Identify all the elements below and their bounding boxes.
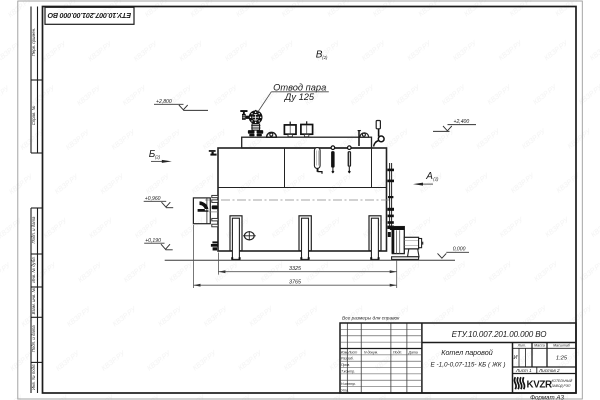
svg-text:Дата: Дата: [408, 350, 418, 354]
svg-text:Инв. № дубл.: Инв. № дубл.: [31, 256, 36, 282]
svg-text:Инв. № подл.: Инв. № подл.: [31, 363, 36, 390]
svg-text:Т.контр.: Т.контр.: [341, 369, 355, 373]
svg-text:Утв.: Утв.: [341, 388, 349, 392]
svg-text:Все размеры для справок: Все размеры для справок: [342, 316, 400, 322]
svg-text:ЕТУ.10.007.201.00.000 ВО: ЕТУ.10.007.201.00.000 ВО: [452, 330, 547, 339]
svg-text:Лист 1: Лист 1: [515, 368, 532, 373]
svg-text:(2): (2): [433, 176, 439, 181]
svg-text:Масштаб: Масштаб: [553, 344, 571, 348]
svg-text:Лит.: Лит.: [517, 344, 526, 348]
svg-text:Подп. и дата: Подп. и дата: [31, 216, 36, 244]
svg-text:3325: 3325: [289, 266, 302, 272]
svg-text:ЕТУ.10.007.201.00.000 ВО: ЕТУ.10.007.201.00.000 ВО: [47, 11, 131, 20]
svg-text:1:25: 1:25: [556, 356, 568, 362]
svg-text:(2): (2): [322, 55, 328, 60]
svg-text:Подп.: Подп.: [393, 350, 402, 354]
svg-text:Подп. и дата: Подп. и дата: [31, 325, 36, 353]
svg-text:И: И: [514, 355, 518, 361]
svg-text:3765: 3765: [289, 279, 302, 285]
svg-text:Масса: Масса: [534, 344, 545, 348]
svg-text:KVZR: KVZR: [527, 380, 553, 391]
svg-text:Н.контр.: Н.контр.: [341, 382, 356, 386]
svg-text:ЗАВОД РЭП: ЗАВОД РЭП: [552, 384, 572, 388]
svg-text:КОТЕЛЬНЫЙ: КОТЕЛЬНЫЙ: [552, 379, 573, 383]
svg-text:Листов 2: Листов 2: [538, 368, 560, 373]
svg-text:Разраб.: Разраб.: [341, 357, 354, 361]
svg-text:Перв. примен.: Перв. примен.: [31, 28, 36, 57]
svg-text:Е -1,0-0,07-115- КБ ( ЖК ): Е -1,0-0,07-115- КБ ( ЖК ): [431, 362, 506, 369]
svg-text:Котел паровой: Котел паровой: [441, 348, 493, 357]
svg-text:Ду 125: Ду 125: [284, 92, 315, 102]
svg-text:Пров.: Пров.: [341, 363, 350, 367]
svg-text:0,000: 0,000: [453, 247, 466, 253]
svg-text:Справ. №: Справ. №: [31, 105, 36, 125]
svg-text:+0,190: +0,190: [145, 238, 161, 244]
svg-text:Формат А3: Формат А3: [530, 394, 564, 400]
svg-text:+0,960: +0,960: [145, 196, 161, 202]
svg-text:+2,400: +2,400: [454, 119, 470, 125]
svg-text:Взам. инв. №: Взам. инв. №: [31, 287, 36, 314]
svg-text:Отвод пара: Отвод пара: [273, 82, 326, 92]
svg-text:Изм.Лист: Изм.Лист: [341, 350, 358, 354]
svg-text:А: А: [425, 171, 433, 182]
svg-text:+2,800: +2,800: [156, 99, 172, 105]
svg-text:N докум.: N докум.: [364, 350, 378, 354]
svg-text:(2): (2): [155, 155, 161, 160]
